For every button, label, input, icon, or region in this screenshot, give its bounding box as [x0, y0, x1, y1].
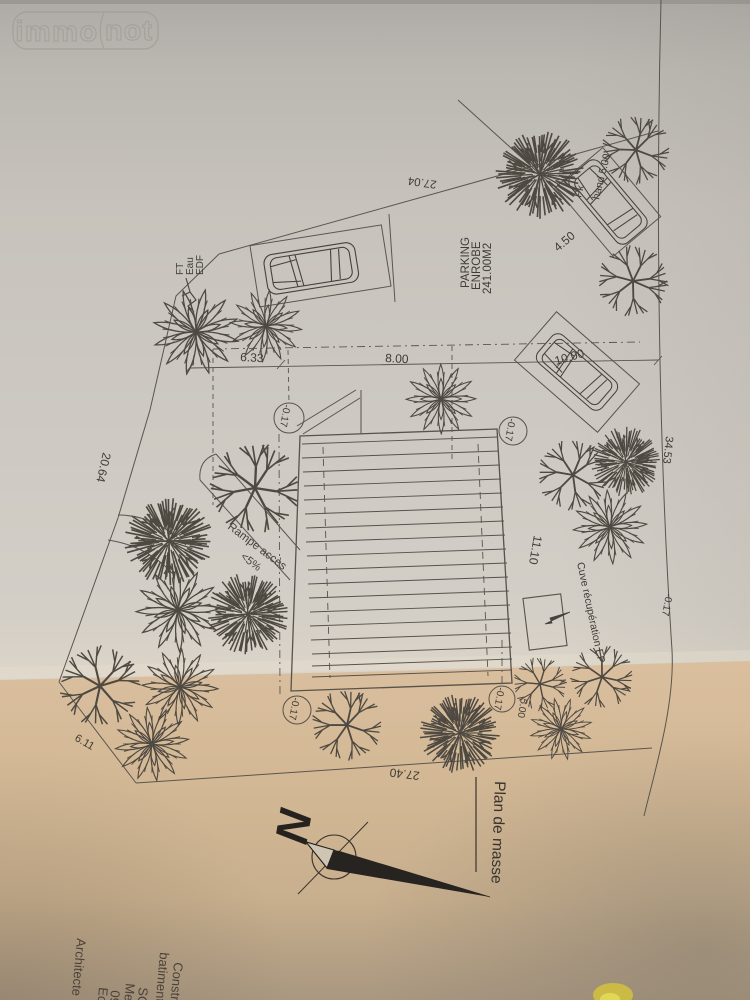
svg-text:EDF: EDF: [195, 255, 206, 275]
svg-text:Plan de masse: Plan de masse: [487, 781, 508, 884]
svg-text:immo: immo: [15, 16, 98, 48]
svg-text:Ec: Ec: [95, 987, 111, 1000]
svg-text:8.00: 8.00: [385, 351, 409, 366]
svg-text:not: not: [105, 15, 153, 47]
svg-text:241.00M2: 241.00M2: [482, 243, 494, 294]
